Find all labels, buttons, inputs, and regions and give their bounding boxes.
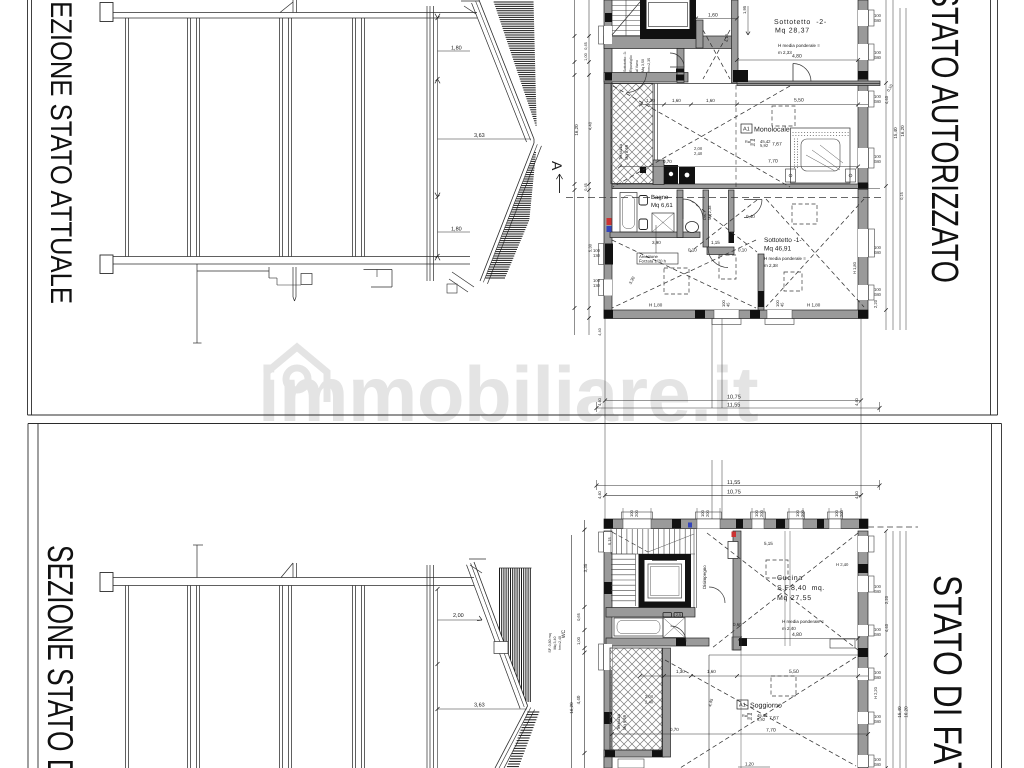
- svg-text:Bagno: Bagno: [651, 194, 669, 201]
- svg-text:2,20: 2,20: [873, 299, 878, 308]
- svg-text:Mq 6,61: Mq 6,61: [651, 202, 673, 209]
- svg-text:Forzata 1/20 h: Forzata 1/20 h: [639, 259, 667, 264]
- svg-text:16,20: 16,20: [574, 124, 579, 136]
- svg-text:Soggiorno: Soggiorno: [750, 702, 782, 710]
- svg-text:200: 200: [839, 510, 844, 517]
- svg-text:16,20: 16,20: [904, 706, 909, 718]
- svg-text:1,60: 1,60: [706, 98, 715, 103]
- svg-text:immobiliare.it: immobiliare.it: [258, 350, 759, 438]
- svg-text:200: 200: [705, 510, 710, 517]
- svg-text:H 2,40: H 2,40: [836, 562, 849, 567]
- svg-text:Mq 2,38: Mq 2,38: [707, 205, 712, 220]
- svg-text:4,40: 4,40: [576, 695, 581, 704]
- svg-text:4,40: 4,40: [854, 397, 859, 406]
- svg-text:hm=2,35: hm=2,35: [647, 58, 651, 72]
- svg-text:1,60: 1,60: [672, 98, 681, 103]
- svg-text:1,60: 1,60: [708, 13, 718, 19]
- svg-text:7,67: 7,67: [769, 716, 779, 722]
- svg-text:hm=2,40: hm=2,40: [558, 636, 562, 650]
- svg-text:2,5: 2,5: [676, 613, 681, 617]
- svg-text:Monolocale: Monolocale: [754, 126, 790, 134]
- svg-text:1,95: 1,95: [742, 5, 747, 14]
- svg-text:4,40: 4,40: [588, 121, 593, 130]
- svg-text:7,70: 7,70: [766, 728, 776, 734]
- svg-text:4,80: 4,80: [792, 632, 802, 638]
- svg-text:2,20: 2,20: [884, 595, 889, 604]
- svg-text:Ripostiglio: Ripostiglio: [629, 55, 633, 72]
- svg-text:5,30: 5,30: [588, 243, 593, 252]
- svg-text:0,45: 0,45: [584, 42, 588, 49]
- svg-text:1,30: 1,30: [646, 98, 655, 103]
- svg-text:A: A: [549, 161, 565, 171]
- svg-text:080: 080: [874, 762, 882, 767]
- svg-text:A1: A1: [739, 703, 746, 709]
- svg-text:0,60: 0,60: [733, 622, 742, 627]
- svg-text:11,55: 11,55: [727, 480, 740, 486]
- svg-text:Terrazza: Terrazza: [616, 713, 621, 730]
- svg-text:H media ponderale =: H media ponderale =: [778, 43, 820, 48]
- svg-text:4,40: 4,40: [884, 95, 889, 104]
- svg-text:0,65: 0,65: [576, 612, 581, 621]
- svg-text:0,70: 0,70: [663, 159, 672, 164]
- svg-text:1,20: 1,20: [745, 762, 754, 767]
- svg-text:Mq 3,50: Mq 3,50: [641, 59, 645, 72]
- svg-text:130: 130: [593, 283, 601, 288]
- svg-text:200: 200: [634, 510, 639, 517]
- svg-text:4,40: 4,40: [884, 623, 889, 632]
- svg-text:080: 080: [874, 99, 882, 104]
- svg-text:Mq 8,69: Mq 8,69: [624, 144, 629, 160]
- svg-text:mq: mq: [747, 712, 752, 716]
- svg-text:H 1,80: H 1,80: [649, 303, 663, 308]
- svg-text:al Vano: al Vano: [635, 60, 639, 72]
- svg-text:0,45: 0,45: [584, 183, 588, 190]
- svg-text:1,30: 1,30: [676, 669, 685, 674]
- svg-text:4,40: 4,40: [598, 328, 602, 335]
- svg-text:0,10: 0,10: [688, 248, 697, 253]
- svg-text:200: 200: [759, 510, 764, 517]
- svg-text:SEZIONE STATO ATTUALE: SEZIONE STATO ATTUALE: [44, 0, 77, 304]
- svg-text:45: 45: [726, 302, 731, 307]
- svg-text:2,00: 2,00: [453, 613, 464, 619]
- svg-text:1,80: 1,80: [451, 227, 462, 233]
- svg-text:15,40: 15,40: [897, 706, 902, 718]
- svg-text:Cucina: Cucina: [777, 574, 803, 582]
- svg-text:080: 080: [874, 250, 882, 255]
- svg-text:5,92: 5,92: [757, 717, 766, 722]
- svg-text:H media ponderale =: H media ponderale =: [782, 619, 824, 624]
- svg-text:S.F.8,40 mq.: S.F.8,40 mq.: [777, 585, 825, 592]
- svg-text:H media ponderale =: H media ponderale =: [764, 256, 806, 261]
- svg-text:5,50: 5,50: [794, 98, 804, 104]
- svg-text:2,40: 2,40: [694, 151, 703, 156]
- svg-text:Disimpegno: Disimpegno: [702, 565, 707, 589]
- svg-text:STATO DI FATTO: STATO DI FATTO: [925, 575, 969, 768]
- svg-text:080: 080: [874, 719, 882, 724]
- svg-text:16,20: 16,20: [569, 702, 574, 714]
- svg-text:7,70: 7,70: [768, 159, 778, 165]
- svg-text:2,40: 2,40: [645, 700, 654, 705]
- svg-text:0,10: 0,10: [738, 248, 747, 253]
- svg-text:080: 080: [874, 589, 882, 594]
- svg-text:10,75: 10,75: [727, 490, 741, 496]
- svg-text:A1: A1: [743, 127, 750, 133]
- svg-text:080: 080: [874, 159, 882, 164]
- svg-text:m 2,40: m 2,40: [782, 626, 796, 631]
- svg-text:H 1,80: H 1,80: [852, 261, 857, 274]
- svg-text:0,15: 0,15: [900, 192, 904, 199]
- svg-text:5,92: 5,92: [760, 143, 769, 148]
- svg-text:4,80: 4,80: [792, 54, 802, 60]
- svg-text:1,15: 1,15: [711, 240, 720, 245]
- svg-text:H 1,80: H 1,80: [807, 303, 821, 308]
- svg-text:11,55: 11,55: [727, 403, 740, 409]
- svg-text:15,40: 15,40: [893, 127, 898, 139]
- svg-text:080: 080: [874, 18, 882, 23]
- svg-text:mq: mq: [750, 138, 755, 142]
- svg-text:4,40: 4,40: [597, 397, 602, 406]
- svg-text:10,75: 10,75: [727, 395, 741, 401]
- svg-text:5,15: 5,15: [764, 541, 773, 546]
- svg-text:Mq 46,91: Mq 46,91: [764, 246, 791, 253]
- svg-text:Mq 28,37: Mq 28,37: [775, 28, 810, 35]
- svg-text:STATO AUTORIZZATO: STATO AUTORIZZATO: [923, 0, 965, 283]
- svg-text:3,63: 3,63: [474, 133, 485, 139]
- svg-text:4,40: 4,40: [854, 490, 859, 499]
- svg-text:1,80: 1,80: [451, 46, 462, 52]
- svg-text:5,15: 5,15: [607, 536, 612, 545]
- svg-text:m 2,33: m 2,33: [778, 50, 792, 55]
- svg-text:Mq 3,40: Mq 3,40: [553, 637, 557, 650]
- svg-text:080: 080: [874, 675, 882, 680]
- svg-text:1,00: 1,00: [576, 636, 581, 645]
- svg-text:080: 080: [874, 632, 882, 637]
- svg-text:4,40: 4,40: [597, 490, 602, 499]
- svg-text:Sottotetto -3-: Sottotetto -3-: [623, 50, 627, 72]
- svg-text:2,00: 2,00: [645, 694, 654, 699]
- svg-text:1,00: 1,00: [584, 53, 588, 60]
- svg-text:080: 080: [874, 292, 882, 297]
- svg-text:0,70: 0,70: [670, 727, 679, 732]
- svg-text:m 2,38: m 2,38: [764, 263, 778, 268]
- svg-text:Sottotetto -2-: Sottotetto -2-: [774, 19, 827, 26]
- svg-text:130: 130: [593, 253, 601, 258]
- svg-text:45: 45: [780, 302, 785, 307]
- svg-text:5,50: 5,50: [789, 669, 799, 675]
- svg-text:3,63: 3,63: [474, 703, 485, 709]
- svg-text:mq: mq: [750, 143, 755, 147]
- svg-text:0,40: 0,40: [746, 214, 755, 219]
- svg-text:3,90: 3,90: [652, 240, 661, 245]
- svg-text:Terrazza: Terrazza: [618, 143, 623, 160]
- svg-text:Mq 27,55: Mq 27,55: [777, 595, 812, 602]
- svg-text:SEZIONE STATO DI FATTO: SEZIONE STATO DI FATTO: [40, 545, 81, 768]
- svg-text:H 2,20: H 2,20: [873, 686, 878, 699]
- svg-text:1,60: 1,60: [707, 669, 716, 674]
- svg-text:3,35: 3,35: [583, 563, 588, 572]
- svg-text:7,67: 7,67: [772, 142, 782, 148]
- svg-text:4,15: 4,15: [724, 33, 729, 42]
- svg-text:080: 080: [874, 55, 882, 60]
- svg-text:Sottotetto -1-: Sottotetto -1-: [764, 237, 802, 244]
- svg-text:mq: mq: [747, 717, 752, 721]
- svg-text:Mq 9,69: Mq 9,69: [622, 714, 627, 730]
- svg-text:16,20: 16,20: [900, 125, 905, 137]
- svg-text:SF. 0,80 mq: SF. 0,80 mq: [548, 633, 552, 652]
